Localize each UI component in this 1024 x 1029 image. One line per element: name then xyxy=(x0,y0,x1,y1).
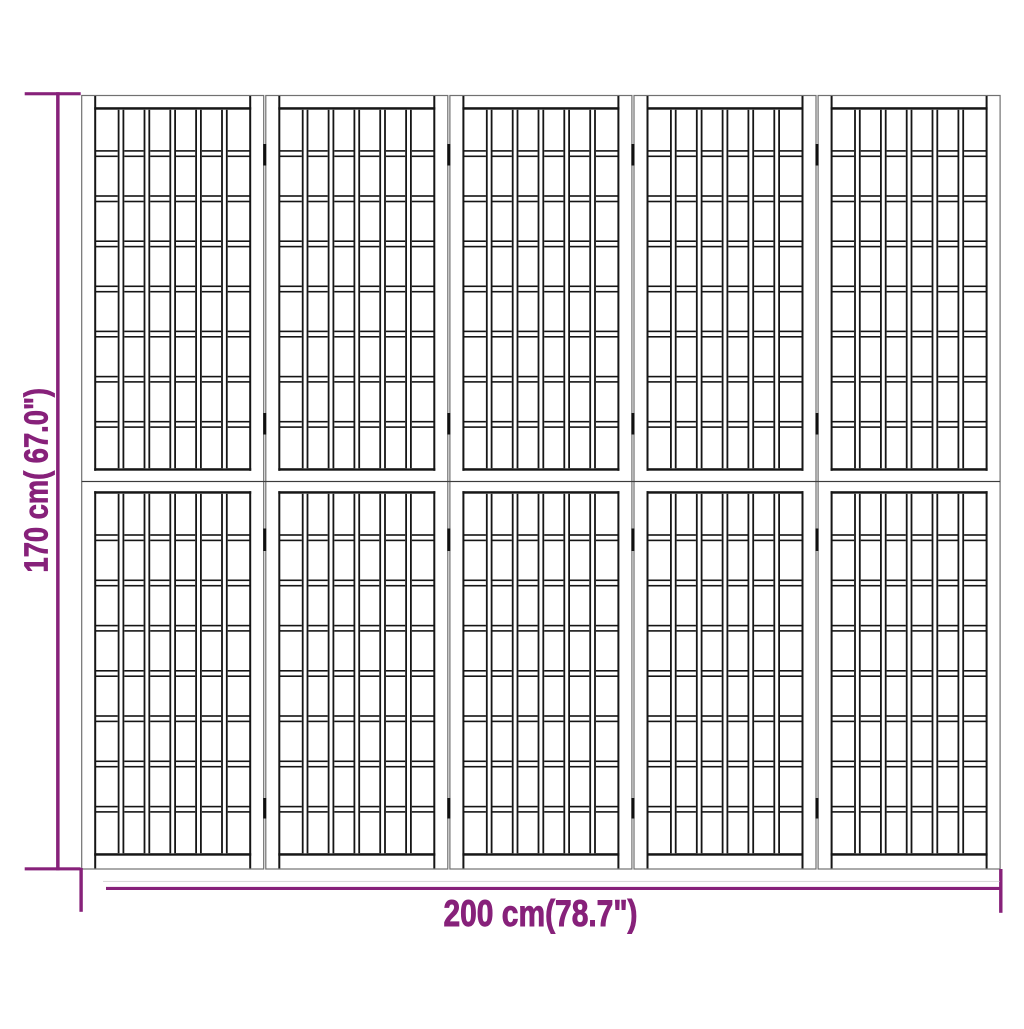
svg-text:170 cm( 67.0"): 170 cm( 67.0") xyxy=(19,388,56,573)
svg-text:200 cm(78.7"): 200 cm(78.7") xyxy=(444,893,638,934)
